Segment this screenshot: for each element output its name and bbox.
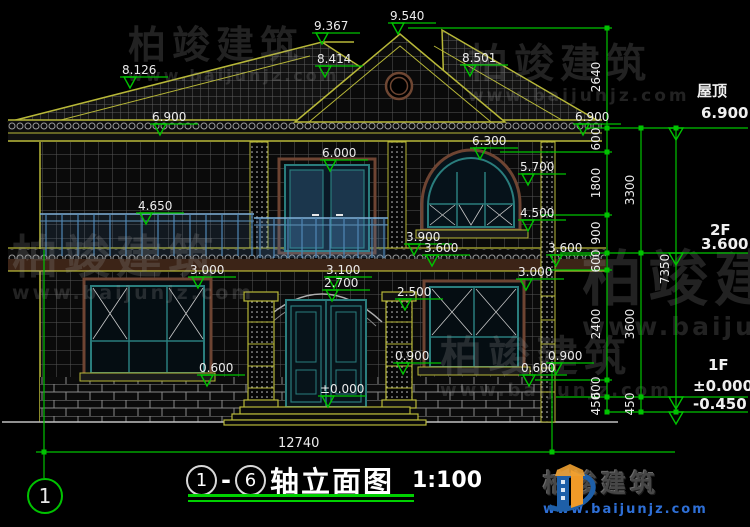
dim-text: 3300 <box>624 148 636 232</box>
dim-text: 3.100 <box>326 264 360 276</box>
dim-text: ±0.000 <box>693 379 750 394</box>
dim-text: 8.126 <box>122 64 156 76</box>
dim-text: 6.900 <box>701 106 748 121</box>
dim-text: 3.000 <box>518 266 552 278</box>
title-underline-1 <box>188 494 414 497</box>
dim-text: 1F <box>708 358 729 373</box>
dim-text: 3.600 <box>701 237 748 252</box>
dim-text: 6.000 <box>322 147 356 159</box>
dim-text: 3.000 <box>190 264 224 276</box>
dim-text: 5.700 <box>520 161 554 173</box>
dim-text: 2.700 <box>324 277 358 289</box>
dim-text: 屋顶 <box>697 84 727 99</box>
dim-text: 9.540 <box>390 10 424 22</box>
title-axis-circle-1: 1 <box>186 465 217 496</box>
dim-text: 8.414 <box>317 53 351 65</box>
dim-text: 7350 <box>659 227 671 311</box>
dim-text: 450 <box>624 362 636 446</box>
axis-bubble-1: 1 <box>27 478 63 514</box>
title-scale: 1:100 <box>412 468 482 493</box>
dim-text: 8.501 <box>462 52 496 64</box>
dim-text: ±0.000 <box>320 383 364 395</box>
dimension-overlay <box>0 0 750 527</box>
dim-text: 9.367 <box>314 20 348 32</box>
title-dash: - <box>221 466 231 494</box>
dim-text: 450 <box>590 362 602 446</box>
title-underline-2 <box>188 500 414 502</box>
title-axis-circle-6: 6 <box>235 465 266 496</box>
dim-text: 0.600 <box>199 362 233 374</box>
overall-width-dim: 12740 <box>278 437 319 450</box>
dim-text: 3.600 <box>548 242 582 254</box>
dim-text: 4.650 <box>138 200 172 212</box>
dim-text: 6.300 <box>472 135 506 147</box>
dim-text: -0.450 <box>693 397 747 412</box>
company-logo: 柏竣建筑 www.baijunjz.com <box>537 456 747 524</box>
dim-text: 2.500 <box>397 286 431 298</box>
dim-text: 0.600 <box>521 362 555 374</box>
dim-text: 3.600 <box>424 242 458 254</box>
dim-text: 0.900 <box>395 350 429 362</box>
logo-mark-icon <box>537 456 599 518</box>
dim-text: 3600 <box>624 282 636 366</box>
cad-elevation-canvas: 9.3679.5408.5018.4148.1266.9006.9006.000… <box>0 0 750 527</box>
dim-text: 4.500 <box>520 207 554 219</box>
dim-text: 6.900 <box>152 111 186 123</box>
